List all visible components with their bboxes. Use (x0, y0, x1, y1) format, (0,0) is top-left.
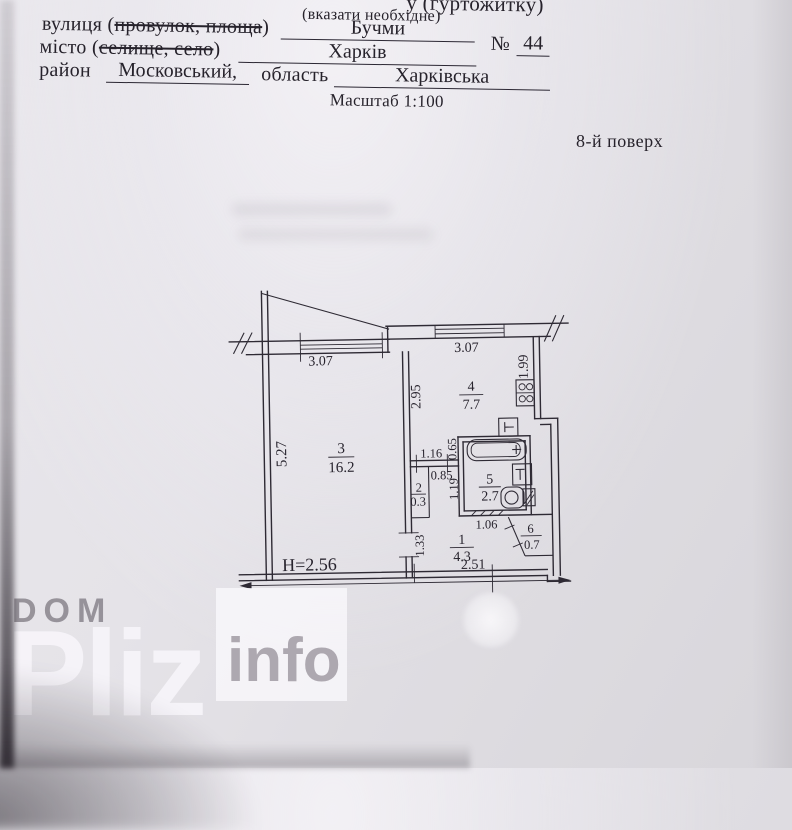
dim-pass-width: 1.16 (420, 446, 442, 460)
paper-shade-bottom-edge (0, 744, 470, 768)
room-bath-num: 5 (486, 472, 493, 487)
district-value: Московський, (106, 59, 249, 85)
dim-window-right: 3.07 (454, 341, 479, 356)
address-form: у (гуртожитку) (вказати необхідне) вулиц… (0, 0, 792, 191)
plan-labels: 3.07 3.07 1.99 2.95 5.27 0.65 1.16 0.85 … (272, 340, 542, 577)
region-label: область (261, 63, 329, 87)
dim-room-depth: 5.27 (274, 440, 290, 467)
street-value: Бучми (281, 15, 475, 42)
room-kitchen-area: 7.7 (463, 398, 481, 413)
region-value: Харківська (334, 63, 550, 90)
room-living-area: 16.2 (328, 460, 355, 476)
floor-label: 8-й поверх (576, 131, 663, 152)
room-closet-area: 0.3 (410, 495, 426, 509)
room-hall-area: 4.3 (453, 550, 471, 565)
dim-bath-depth: 1.19 (447, 478, 461, 500)
paper-shade-corner (0, 640, 300, 830)
dim-bath-width: 1.06 (475, 517, 497, 531)
photographed-document-page: { "header": { "top_partial": "у (гуртожи… (0, 0, 792, 768)
room-closet-num: 2 (416, 481, 422, 495)
house-number-sign: № (490, 33, 510, 56)
city-label: місто (селище, село) (39, 36, 220, 62)
dim-hall-door: 1.33 (413, 535, 427, 557)
room-builtin-area: 0.7 (524, 538, 540, 552)
ceiling-height-note: H=2.56 (282, 554, 337, 575)
city-struck-options: селище, село (99, 37, 214, 61)
room-bath-area: 2.7 (481, 489, 499, 504)
scale-note: Масштаб 1:100 (330, 90, 444, 112)
house-number-value: 44 (516, 32, 549, 57)
dim-kitchen-width: 2.95 (409, 384, 424, 409)
room-hall-num: 1 (458, 533, 465, 548)
district-label: район (39, 59, 91, 83)
dim-pass-depth: 0.65 (445, 438, 459, 460)
room-kitchen-num: 4 (467, 380, 474, 395)
dim-kitchen-depth: 1.99 (517, 354, 532, 379)
room-living-num: 3 (337, 441, 345, 457)
room-builtin-num: 6 (527, 522, 533, 536)
dim-window-left: 3.07 (308, 354, 333, 369)
street-struck-options: провулок, площа (114, 14, 262, 38)
